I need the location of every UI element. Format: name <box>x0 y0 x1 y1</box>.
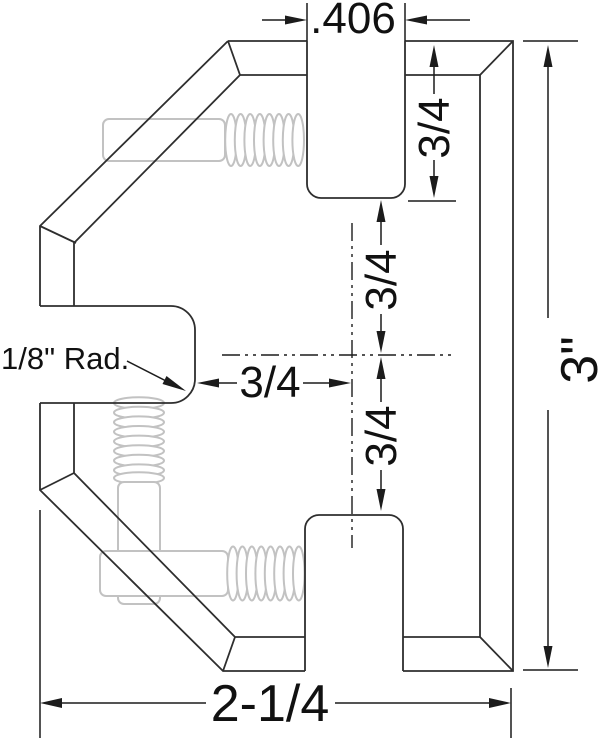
arrowhead-right <box>329 379 351 388</box>
bottom-bolt <box>100 547 305 601</box>
dim-text-slot-width: .406 <box>310 0 396 43</box>
bottom-slot <box>305 515 403 671</box>
top-slot <box>307 41 405 198</box>
top-bolt <box>103 114 304 166</box>
drawing-canvas: .406 3/4 3/4 3/4 3/4 1/8" Rad. <box>0 0 600 741</box>
dim-overall-width: 2-1/4 <box>40 510 511 738</box>
arrowhead-down <box>430 176 439 198</box>
dim-text-center-lower: 3/4 <box>357 405 406 466</box>
dim-top-slot-depth: 3/4 <box>408 45 459 201</box>
note-text-notch-radius: 1/8" Rad. <box>1 341 129 376</box>
dim-notch-to-center: 3/4 <box>197 358 351 407</box>
arrowhead-down <box>544 646 553 668</box>
left-bolt-threads <box>114 397 164 484</box>
leader-arrowhead <box>163 376 187 391</box>
arrowhead-up <box>544 45 553 67</box>
arrowhead-up <box>430 45 439 67</box>
dim-text-center-upper: 3/4 <box>357 249 406 310</box>
technical-drawing: .406 3/4 3/4 3/4 3/4 1/8" Rad. <box>0 0 600 741</box>
arrowhead-down <box>377 331 386 353</box>
leader-line <box>127 361 170 383</box>
dim-center-upper: 3/4 <box>357 200 406 353</box>
arrowhead-left <box>40 698 62 708</box>
bottom-bolt-threads <box>227 547 304 601</box>
arrowhead-down <box>377 489 386 511</box>
dim-text-overall-height: 3" <box>551 336 600 383</box>
top-bolt-threads <box>225 114 304 166</box>
dim-text-overall-width: 2-1/4 <box>211 675 330 733</box>
dim-center-lower: 3/4 <box>357 357 406 511</box>
dim-overall-height: 3" <box>523 41 600 670</box>
arrowhead-right <box>285 16 307 25</box>
dim-text-notch-to-center: 3/4 <box>239 358 300 407</box>
arrowhead-up <box>377 357 386 379</box>
note-notch-radius: 1/8" Rad. <box>1 341 186 391</box>
thread-coil <box>293 547 305 601</box>
bottom-bolt-shank <box>100 551 228 596</box>
dim-slot-width: .406 <box>262 0 470 43</box>
thread-coil <box>292 114 304 166</box>
arrowhead-up <box>377 200 386 222</box>
arrowhead-right <box>489 698 511 708</box>
dim-text-top-slot-depth: 3/4 <box>410 97 459 158</box>
arrowhead-left <box>197 379 219 388</box>
top-bolt-shank <box>103 119 225 161</box>
arrowhead-left <box>405 16 427 25</box>
